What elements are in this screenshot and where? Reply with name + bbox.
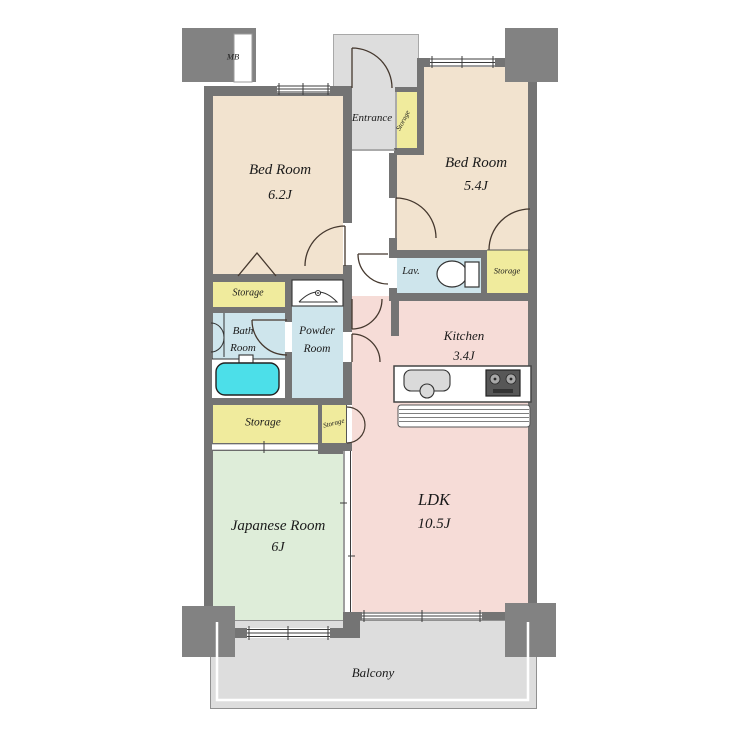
wall-segment <box>395 87 424 92</box>
bedroom1-label: Bed Room 6.2J <box>249 157 311 209</box>
bedroom2-size: 5.4J <box>445 175 507 199</box>
ldk-size: 10.5J <box>418 512 451 536</box>
entrance-porch <box>333 34 419 89</box>
balcony-label: Balcony <box>352 666 395 680</box>
wall-segment <box>389 238 397 258</box>
bedroom1-size: 6.2J <box>249 183 311 209</box>
bedroom2-label: Bed Room 5.4J <box>445 151 507 199</box>
wall-segment <box>389 153 397 198</box>
meter-box-label: MB <box>227 52 239 61</box>
wall-segment <box>318 443 352 454</box>
bedroom2-floor-lower <box>397 155 424 250</box>
wall-segment <box>389 293 537 301</box>
wall-segment <box>343 280 352 332</box>
wall-segment <box>204 307 292 313</box>
lavatory-door <box>358 254 388 284</box>
powder-label: Powder Room <box>299 322 335 358</box>
bedroom1-name: Bed Room <box>249 162 311 178</box>
lavatory-label: Lav. <box>402 266 420 278</box>
wall-segment <box>352 612 505 620</box>
bath-label: Bath Room <box>230 323 256 357</box>
wall-segment <box>285 280 292 307</box>
pillar <box>505 28 558 82</box>
pillar <box>182 28 256 82</box>
floor-plan: MB Bed Room 6.2J Bed Room 5.4J Entrance … <box>0 0 740 740</box>
bath-line1: Bath <box>233 325 254 337</box>
ldk-floor <box>352 296 528 612</box>
wall-segment <box>204 86 352 96</box>
japanese-room-size: 6J <box>231 537 326 559</box>
wall-segment <box>528 58 537 612</box>
ldk-name: LDK <box>418 490 450 509</box>
wall-segment <box>285 307 292 322</box>
wall-segment <box>343 362 352 398</box>
pillar <box>505 603 556 657</box>
wall-segment <box>204 274 343 282</box>
wall-segment <box>333 87 352 92</box>
kitchen-name: Kitchen <box>444 328 484 343</box>
lavatory-storage-label: Storage <box>494 266 520 275</box>
wall-segment <box>285 352 292 400</box>
wall-segment <box>343 265 352 280</box>
wall-segment <box>397 250 487 258</box>
kitchen-size: 3.4J <box>444 346 484 366</box>
pillar <box>182 606 235 657</box>
powder-line2: Room <box>299 340 335 358</box>
wall-segment <box>343 86 352 223</box>
ldk-label: LDK 10.5J <box>418 488 451 536</box>
powder-line1: Powder <box>299 325 335 337</box>
wall-segment <box>481 250 487 293</box>
kitchen-label: Kitchen 3.4J <box>444 326 484 366</box>
entrance-label: Entrance <box>352 112 392 124</box>
wall-segment <box>318 405 322 443</box>
wall-segment <box>204 398 352 405</box>
bath-storage-label: Storage <box>232 288 263 299</box>
japanese-room-name: Japanese Room <box>231 518 326 534</box>
wall-segment <box>204 86 213 606</box>
main-storage-label: Storage <box>245 417 281 430</box>
bedroom2-name: Bed Room <box>445 155 507 171</box>
wall-segment <box>394 148 424 155</box>
wall-segment <box>391 301 399 336</box>
japanese-room-label: Japanese Room 6J <box>231 515 326 559</box>
bath-line2: Room <box>230 340 256 357</box>
wall-segment <box>417 58 424 155</box>
